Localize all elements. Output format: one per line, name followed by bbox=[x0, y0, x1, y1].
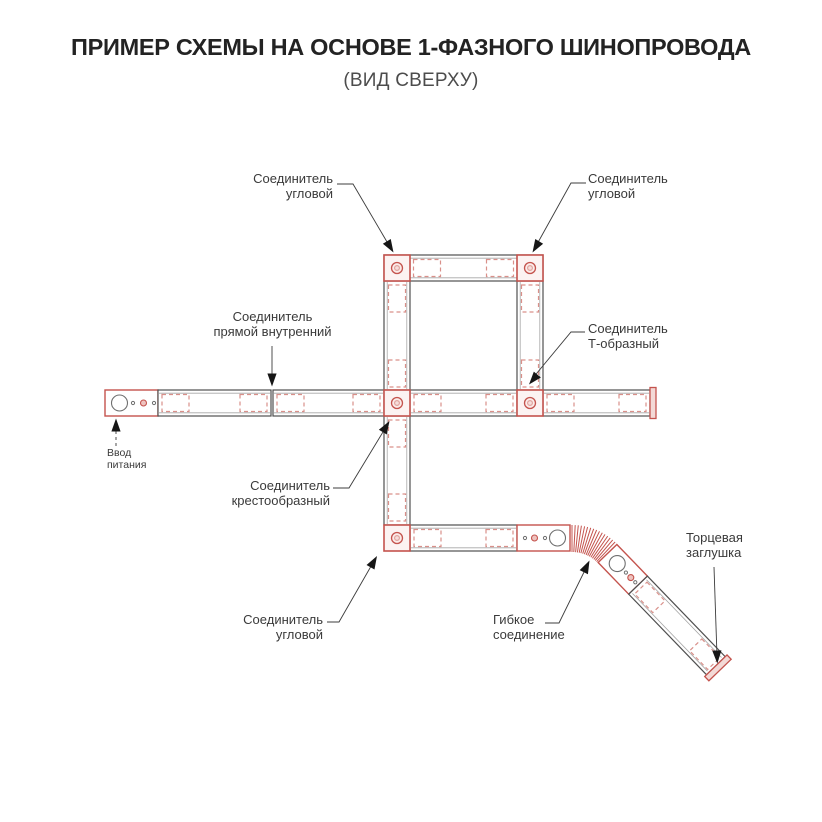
label-straight-internal-connector: Соединитель прямой внутренний bbox=[172, 309, 373, 339]
connector-cross bbox=[384, 390, 410, 416]
label-corner-connector-top-right: Соединитель угловой bbox=[588, 171, 668, 201]
label-end-cap: Торцевая заглушка bbox=[686, 530, 743, 560]
diagram-canvas bbox=[0, 0, 822, 822]
connector-corner-top-left bbox=[384, 255, 410, 281]
track-diagonal bbox=[596, 543, 731, 681]
label-flexible-connection: Гибкое соединение bbox=[493, 612, 565, 642]
label-t-shaped-connector: Соединитель Т-образный bbox=[588, 321, 668, 351]
track-bottom bbox=[410, 525, 570, 551]
power-feed-block bbox=[105, 390, 158, 416]
label-power-input: Ввод питания bbox=[107, 447, 146, 471]
connector-corner-bottom bbox=[384, 525, 410, 551]
label-corner-connector-top-left: Соединитель угловой bbox=[253, 171, 333, 201]
track-left-upper bbox=[384, 281, 410, 390]
flex-connector-block-a bbox=[517, 525, 570, 551]
connector-corner-top-right bbox=[517, 255, 543, 281]
end-cap-right bbox=[650, 388, 656, 419]
track-right-upper bbox=[517, 281, 543, 390]
label-cross-connector: Соединитель крестообразный bbox=[232, 478, 330, 508]
track-middle bbox=[105, 388, 656, 419]
track-left-lower bbox=[384, 416, 410, 525]
connector-t-shaped bbox=[517, 390, 543, 416]
label-corner-connector-bottom: Соединитель угловой bbox=[243, 612, 323, 642]
